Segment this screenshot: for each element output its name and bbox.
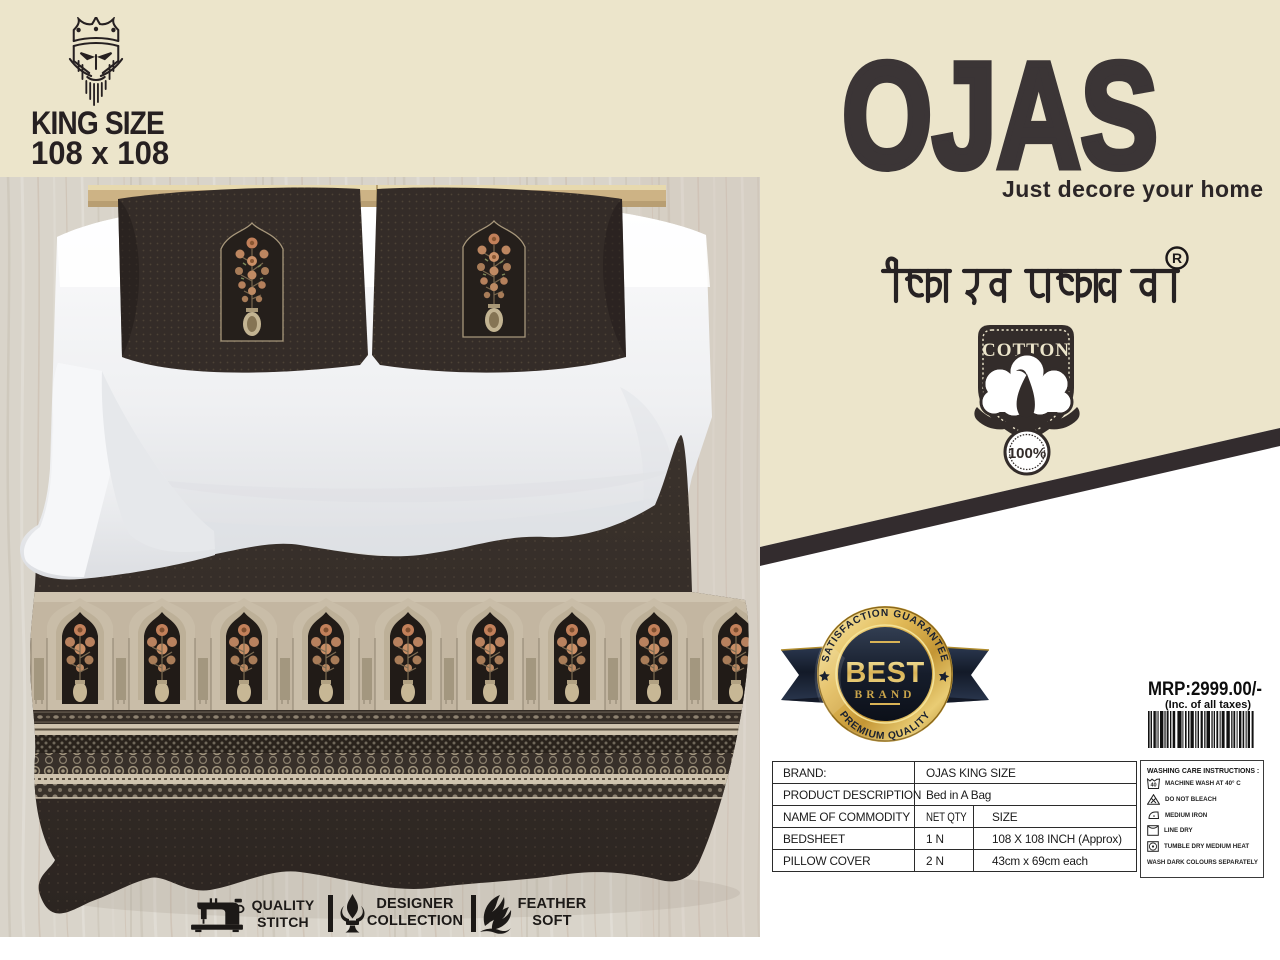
svg-text:MRP:2999.00/-: MRP:2999.00/- bbox=[1148, 679, 1262, 700]
svg-text:BRAND: BRAND bbox=[855, 689, 916, 701]
svg-text:R: R bbox=[1172, 250, 1182, 266]
svg-text:100%: 100% bbox=[1008, 445, 1046, 462]
svg-text:BEST: BEST bbox=[845, 657, 924, 689]
svg-text:(Inc. of all taxes): (Inc. of all taxes) bbox=[1165, 699, 1251, 711]
svg-text:40: 40 bbox=[1150, 783, 1156, 789]
